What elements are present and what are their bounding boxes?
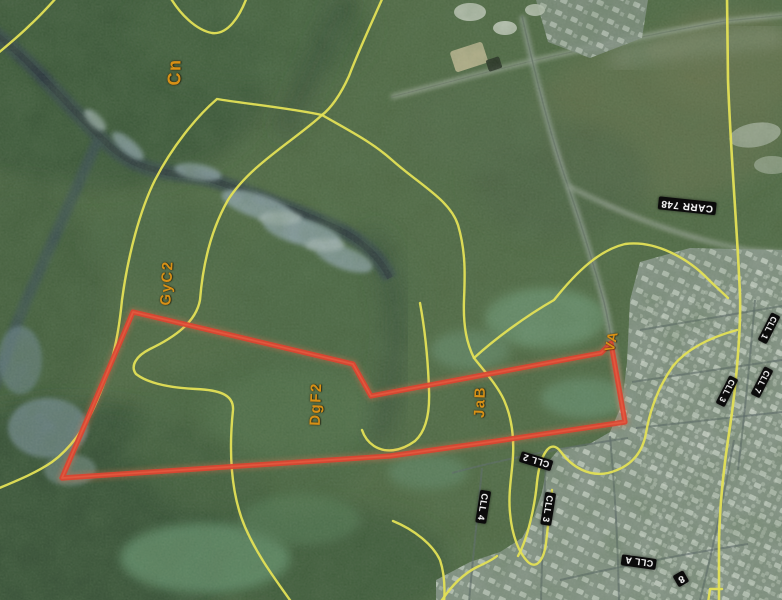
street-label-carr-748: CARR 748 (657, 197, 716, 216)
soil-label-jab: JaB (471, 386, 489, 419)
street-label-cll-4: CLL 4 (475, 490, 491, 525)
street-label-cll-3: CLL 3 (540, 492, 556, 527)
soil-label-dgf2: DgF2 (307, 382, 326, 426)
soil-survey-map-screenshot: CnGyC2DgF2JaBVACARR 748CLL 2CLL 4CLL 3CL… (0, 0, 782, 600)
street-label-cll-a: CLL A (621, 554, 657, 570)
street-label-cll-7: CLL 7 (751, 366, 774, 398)
soil-label-cn: Cn (165, 59, 186, 86)
street-label-partial-8: 8 (673, 571, 690, 588)
street-label-cll-3-east: CLL 3 (716, 375, 739, 407)
map-labels-layer: CnGyC2DgF2JaBVACARR 748CLL 2CLL 4CLL 3CL… (0, 0, 782, 600)
street-label-cll-1: CLL 1 (758, 312, 781, 344)
street-label-cll-2: CLL 2 (518, 451, 553, 472)
soil-label-gyc2: GyC2 (157, 260, 176, 306)
soil-label-va: VA (601, 329, 621, 353)
